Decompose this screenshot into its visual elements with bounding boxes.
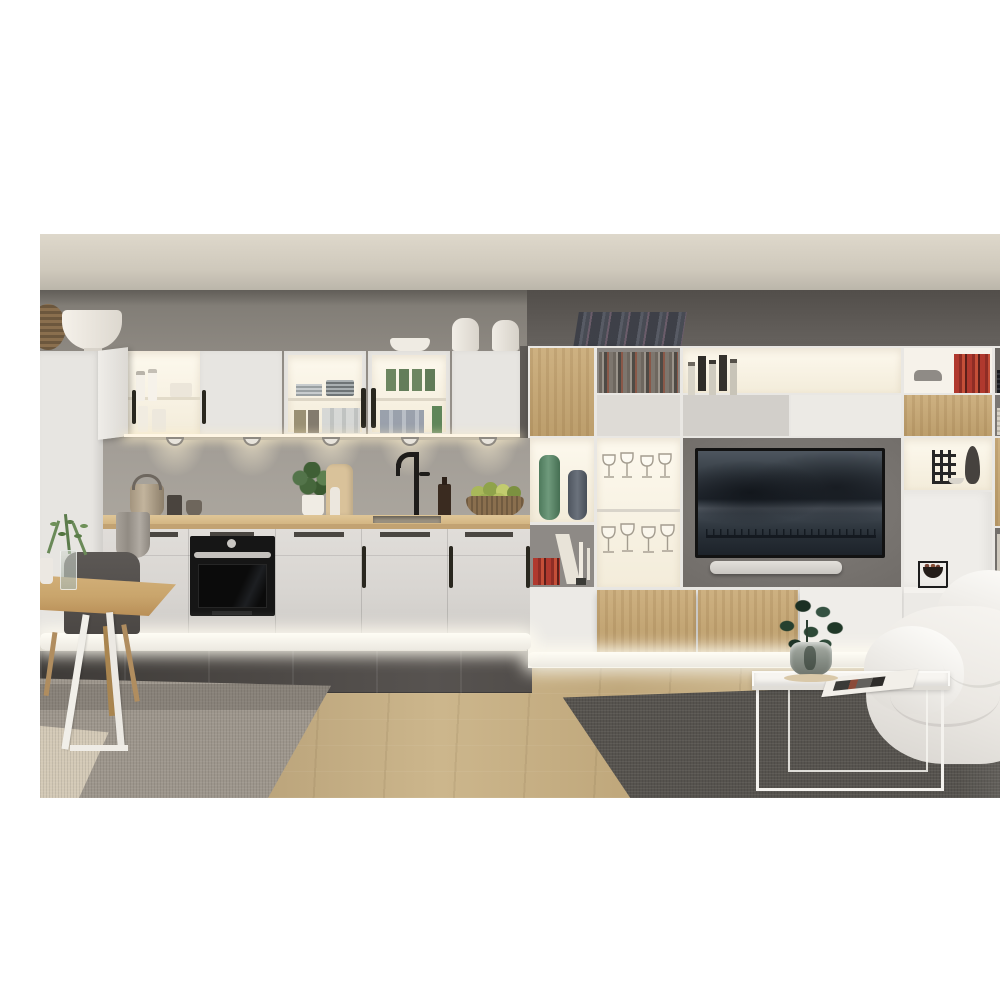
cabinet-seam bbox=[447, 529, 448, 635]
drawer-handle-slot bbox=[294, 532, 344, 537]
unit-door bbox=[597, 395, 680, 436]
light-pool bbox=[207, 440, 297, 512]
green-vase bbox=[539, 455, 560, 520]
unit-wood-door-farright bbox=[995, 438, 1000, 526]
unit-door bbox=[791, 395, 901, 436]
liquor-bottle bbox=[719, 355, 727, 391]
base-cabinets bbox=[103, 529, 530, 635]
small-white-bowl bbox=[390, 338, 430, 351]
toy-car bbox=[914, 370, 942, 381]
red-books bbox=[954, 354, 990, 393]
wall-cabinet-door bbox=[200, 351, 282, 436]
glass-bowl bbox=[948, 478, 964, 484]
countertop bbox=[103, 515, 530, 524]
blue-glass-row bbox=[380, 410, 424, 433]
unit-bar-shelf bbox=[683, 348, 901, 393]
cabinet-handle bbox=[202, 390, 206, 424]
glass-vase bbox=[60, 550, 77, 590]
wine-glasses-top bbox=[600, 450, 677, 500]
tv-pier-deck bbox=[706, 535, 876, 538]
shelf-line bbox=[288, 398, 362, 401]
shelf-line bbox=[372, 398, 446, 401]
oil-bottle-neck bbox=[442, 477, 447, 485]
unit-paper-cubby bbox=[995, 395, 1000, 436]
sink bbox=[373, 516, 441, 523]
cabinet-seam bbox=[188, 529, 189, 635]
cabinet-handle bbox=[132, 390, 136, 424]
glass-cabinet-b bbox=[368, 351, 450, 436]
canister bbox=[452, 318, 479, 351]
white-bottle bbox=[138, 406, 148, 432]
dark-vase bbox=[965, 446, 980, 484]
glass-cabinet-a-interior bbox=[288, 355, 362, 432]
cabinet-seam bbox=[275, 529, 276, 635]
door-handle bbox=[449, 546, 453, 588]
leaning-books-top bbox=[573, 312, 687, 348]
coffee-table-front-frame bbox=[756, 689, 944, 791]
wall-cabinet-door bbox=[452, 351, 520, 436]
kubus-bowl bbox=[918, 561, 948, 588]
jar-stack bbox=[170, 383, 192, 397]
canister bbox=[492, 320, 519, 351]
soundbar bbox=[710, 561, 842, 574]
ceiling bbox=[40, 234, 1000, 298]
oil-bottle bbox=[438, 484, 451, 517]
tv-screen bbox=[698, 451, 882, 555]
rug-left-cream-corner bbox=[40, 716, 118, 798]
oven-handle bbox=[194, 552, 271, 558]
tumbler bbox=[294, 410, 306, 433]
unit-wood-door bbox=[904, 395, 992, 436]
pepper-mill bbox=[330, 487, 340, 516]
liquor-bottle bbox=[709, 360, 716, 395]
oven-knob bbox=[227, 539, 236, 548]
candle-holder bbox=[576, 578, 586, 585]
vase-stems-silhouette bbox=[804, 646, 816, 670]
green-glass bbox=[386, 369, 396, 391]
drawer-handle-slot bbox=[380, 532, 430, 537]
unit-white-cubby-car bbox=[904, 348, 992, 393]
red-book-stack bbox=[533, 558, 560, 585]
blue-grey-vase bbox=[568, 470, 587, 520]
candle bbox=[587, 548, 590, 580]
tumbler bbox=[308, 410, 319, 433]
glass-row bbox=[322, 408, 360, 433]
wall-shadow bbox=[40, 290, 532, 306]
liquor-bottle bbox=[698, 356, 706, 391]
white-bottle bbox=[148, 369, 157, 401]
plate-stack bbox=[326, 380, 354, 396]
door-handle bbox=[526, 546, 530, 588]
candle bbox=[579, 542, 583, 580]
green-glass bbox=[425, 369, 435, 391]
plant-pot bbox=[302, 495, 324, 516]
plate-stack bbox=[296, 384, 322, 396]
dark-mug bbox=[167, 495, 182, 517]
drawer-seam bbox=[103, 555, 530, 556]
sprig-leaves bbox=[46, 518, 90, 542]
glass-cabinet-b-interior bbox=[372, 355, 446, 432]
green-glass bbox=[432, 406, 442, 433]
magazine-spines bbox=[599, 352, 678, 393]
cabinet-handle bbox=[371, 388, 376, 428]
unit-oak-floating-cabinet bbox=[597, 590, 696, 653]
faucet-spout bbox=[396, 464, 400, 476]
unit-door bbox=[683, 395, 789, 436]
cabinet-door-open bbox=[98, 347, 128, 440]
unit-vase-cubby bbox=[530, 438, 594, 522]
faucet-lever bbox=[419, 472, 430, 476]
green-glass bbox=[399, 369, 409, 391]
cabinet-handle bbox=[361, 388, 366, 428]
unit-glass-cabinet bbox=[597, 438, 680, 587]
unit-magazine-cubby bbox=[597, 348, 680, 393]
oven bbox=[190, 536, 275, 616]
tv-recess bbox=[683, 438, 901, 587]
white-jar bbox=[152, 409, 166, 432]
kubus-cup bbox=[923, 567, 943, 578]
plant-vase bbox=[790, 642, 832, 676]
oven-vent bbox=[212, 611, 252, 615]
rug-left-dark-band bbox=[40, 684, 340, 710]
tv bbox=[695, 448, 885, 558]
drawer-handle-slot bbox=[465, 532, 513, 537]
table-leg-foot bbox=[70, 745, 128, 751]
glass-cabinet-a bbox=[284, 351, 366, 436]
liquor-bottle bbox=[730, 359, 737, 395]
green-glass bbox=[412, 369, 422, 391]
wine-glasses-bottom bbox=[600, 520, 677, 574]
white-bottle bbox=[136, 371, 145, 401]
unit-bookshelf-left bbox=[530, 525, 594, 587]
unit-decor-cubby-right bbox=[904, 438, 992, 490]
unit-wood-door-topleft bbox=[530, 348, 594, 436]
glass-shelf-line bbox=[597, 509, 680, 512]
oven-door-glass bbox=[198, 564, 267, 608]
vase-coaster bbox=[784, 674, 838, 682]
white-cup bbox=[40, 558, 53, 584]
door-handle bbox=[362, 546, 366, 588]
unit-dark-cubby-books bbox=[995, 348, 1000, 393]
interior-photo: Modern open-plan interior render: on the… bbox=[40, 234, 1000, 798]
liquor-bottle bbox=[688, 362, 695, 395]
magazine-print bbox=[833, 676, 886, 691]
